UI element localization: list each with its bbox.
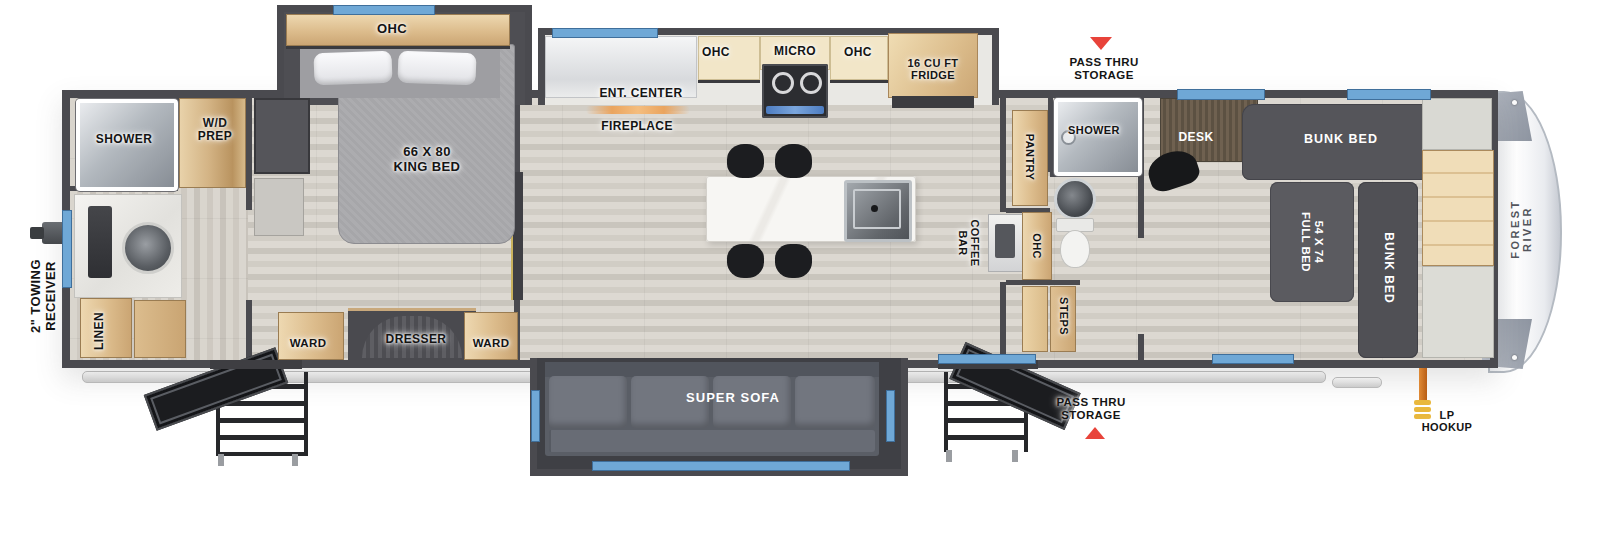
toilet-bowl xyxy=(1060,230,1090,268)
bunk-cabinet-bottom xyxy=(1422,266,1494,358)
ward-left-label: WARD xyxy=(290,337,327,350)
mid-shower-label: SHOWER xyxy=(1068,124,1120,136)
bedroom-closet xyxy=(254,98,310,174)
window-strip xyxy=(531,390,540,442)
rear-shower-label: SHOWER xyxy=(96,133,152,146)
bedroom-ohc-label: OHC xyxy=(377,22,407,37)
window-strip xyxy=(1347,89,1431,100)
dresser-label: DRESSER xyxy=(386,333,447,346)
bumper-rail-right xyxy=(1332,377,1382,388)
island-chair xyxy=(775,244,812,278)
bunk-bed-side-label: BUNK BED xyxy=(1381,232,1394,303)
linen-label: LINEN xyxy=(93,312,106,350)
mid-bath-shower xyxy=(1054,98,1142,176)
window-strip xyxy=(1212,354,1294,364)
super-sofa xyxy=(545,362,879,456)
lp-hookup-label: LP HOOKUP xyxy=(1422,409,1473,434)
towing-receiver-label: 2" TOWING RECEIVER xyxy=(29,259,58,333)
brand-label: FOREST RIVER xyxy=(1509,190,1534,269)
island-sink xyxy=(844,180,912,242)
bunk-steps xyxy=(1422,150,1494,266)
vanity-mirror xyxy=(88,206,112,278)
island-chair xyxy=(727,244,764,278)
ent-center-label: ENT. CENTER xyxy=(599,87,682,100)
window-strip xyxy=(938,354,1036,364)
pass-thru-top-label: PASS THRU STORAGE xyxy=(1069,56,1138,82)
wd-prep-label: W/D PREP xyxy=(198,117,232,144)
island-chair xyxy=(775,144,812,178)
bedroom-bench xyxy=(254,178,304,236)
bunk-cabinet-top xyxy=(1422,98,1492,150)
coffee-bar-cabinet xyxy=(988,214,1024,272)
pillow-right xyxy=(397,51,476,86)
kitchen-ohc-left-label: OHC xyxy=(702,46,730,59)
steps-label: STEPS xyxy=(1058,297,1070,335)
window-strip xyxy=(552,28,658,38)
lp-hookup-pipe xyxy=(1419,368,1427,402)
mid-bath-sink xyxy=(1054,178,1096,220)
stove xyxy=(762,64,828,118)
fireplace-label: FIREPLACE xyxy=(601,120,673,133)
interior-steps xyxy=(1022,286,1048,352)
step-leg xyxy=(218,454,224,466)
window-strip xyxy=(333,5,435,15)
fridge-label: 16 CU FT FRIDGE xyxy=(908,57,959,82)
window-strip xyxy=(1177,89,1265,100)
oven-light xyxy=(766,106,824,114)
window-strip xyxy=(62,210,72,288)
pantry-label: PANTRY xyxy=(1024,134,1036,180)
king-bed-label: 66 X 80 KING BED xyxy=(394,145,461,174)
rv-floorplan: FOREST RIVER xyxy=(0,0,1600,543)
bunk-bed-top-label: BUNK BED xyxy=(1304,132,1378,146)
step-leg xyxy=(1012,450,1018,462)
fireplace-glow xyxy=(586,106,690,114)
mid-ohc-label: OHC xyxy=(1031,233,1043,259)
super-sofa-label: SUPER SOFA xyxy=(686,391,780,406)
window-strip xyxy=(886,390,895,442)
kitchen-ohc-right-label: OHC xyxy=(844,46,872,59)
pass-thru-arrow-up-icon xyxy=(1085,427,1105,439)
rear-bath-cabinet xyxy=(134,300,186,358)
bedroom-entry-threshold xyxy=(210,360,302,369)
micro-label: MICRO xyxy=(774,45,816,58)
island-chair xyxy=(727,144,764,178)
step-leg xyxy=(946,450,952,462)
coffee-bar-label: COFFEE BAR xyxy=(957,219,982,266)
lp-hookup-connector xyxy=(1414,400,1431,405)
fridge-base xyxy=(892,96,974,108)
step-leg xyxy=(292,454,298,466)
pass-thru-arrow-down-icon xyxy=(1090,37,1112,50)
window-strip xyxy=(592,461,850,471)
ward-right-label: WARD xyxy=(473,337,510,350)
full-bed-label: 54 X 74 FULL BED xyxy=(1299,212,1325,272)
towing-receiver-arm xyxy=(30,227,44,239)
pass-thru-bottom-label: PASS THRU STORAGE xyxy=(1056,396,1125,422)
vanity-sink xyxy=(122,222,174,274)
pillow-left xyxy=(313,51,392,86)
desk-label: DESK xyxy=(1179,131,1214,144)
